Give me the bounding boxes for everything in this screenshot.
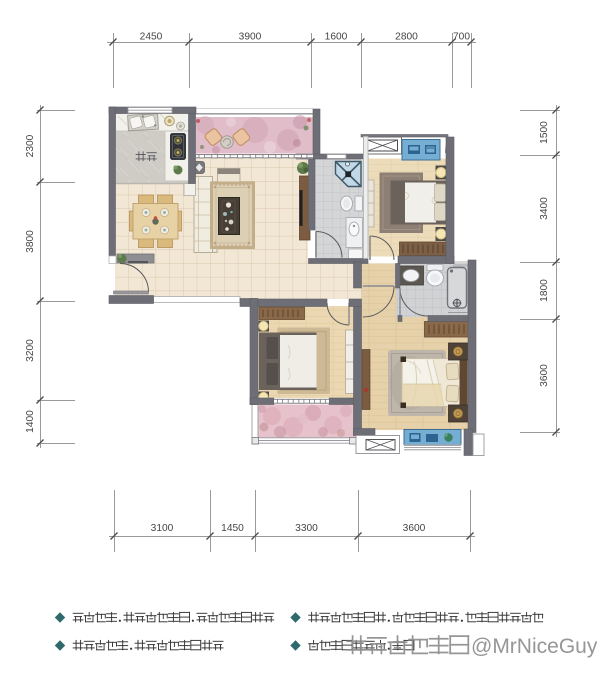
svg-text:3100: 3100 — [151, 523, 174, 534]
svg-text:3400: 3400 — [539, 197, 550, 220]
svg-text:1400: 1400 — [25, 410, 36, 433]
svg-text:2450: 2450 — [140, 31, 163, 42]
svg-text:3300: 3300 — [295, 523, 318, 534]
svg-text:1500: 1500 — [539, 121, 550, 144]
svg-text:@MrNiceGuy: @MrNiceGuy — [471, 635, 598, 658]
svg-text:1450: 1450 — [221, 523, 244, 534]
svg-text:2800: 2800 — [395, 31, 418, 42]
svg-text:3800: 3800 — [25, 230, 36, 253]
svg-text:1600: 1600 — [325, 31, 348, 42]
svg-text:1800: 1800 — [539, 279, 550, 302]
svg-text:3200: 3200 — [25, 339, 36, 362]
svg-text:2300: 2300 — [25, 134, 36, 157]
svg-text:700: 700 — [453, 31, 470, 42]
svg-text:3900: 3900 — [239, 31, 262, 42]
svg-text:3600: 3600 — [539, 364, 550, 387]
svg-text:3600: 3600 — [403, 523, 426, 534]
